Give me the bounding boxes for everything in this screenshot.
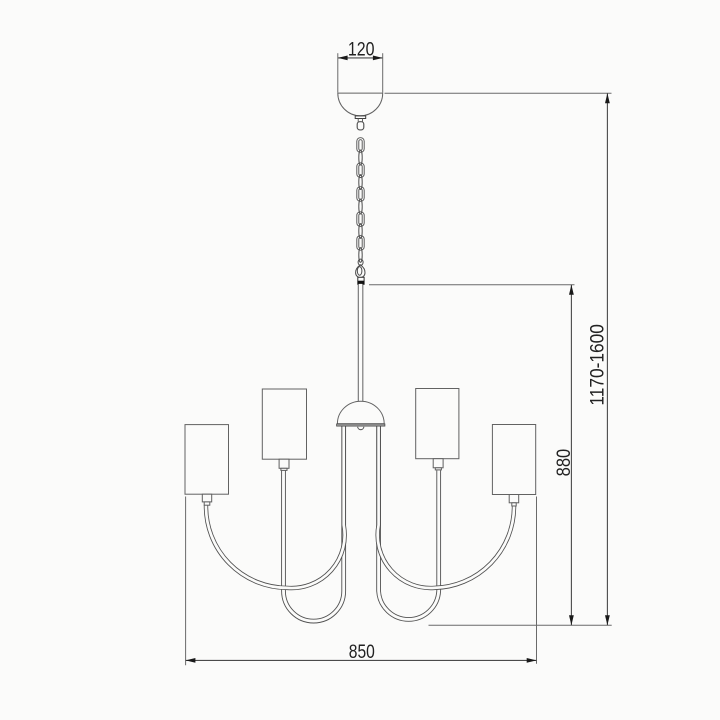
svg-text:880: 880 xyxy=(554,449,575,477)
svg-text:850: 850 xyxy=(349,642,375,663)
svg-text:1170-1600: 1170-1600 xyxy=(587,324,608,406)
svg-text:120: 120 xyxy=(348,39,375,60)
